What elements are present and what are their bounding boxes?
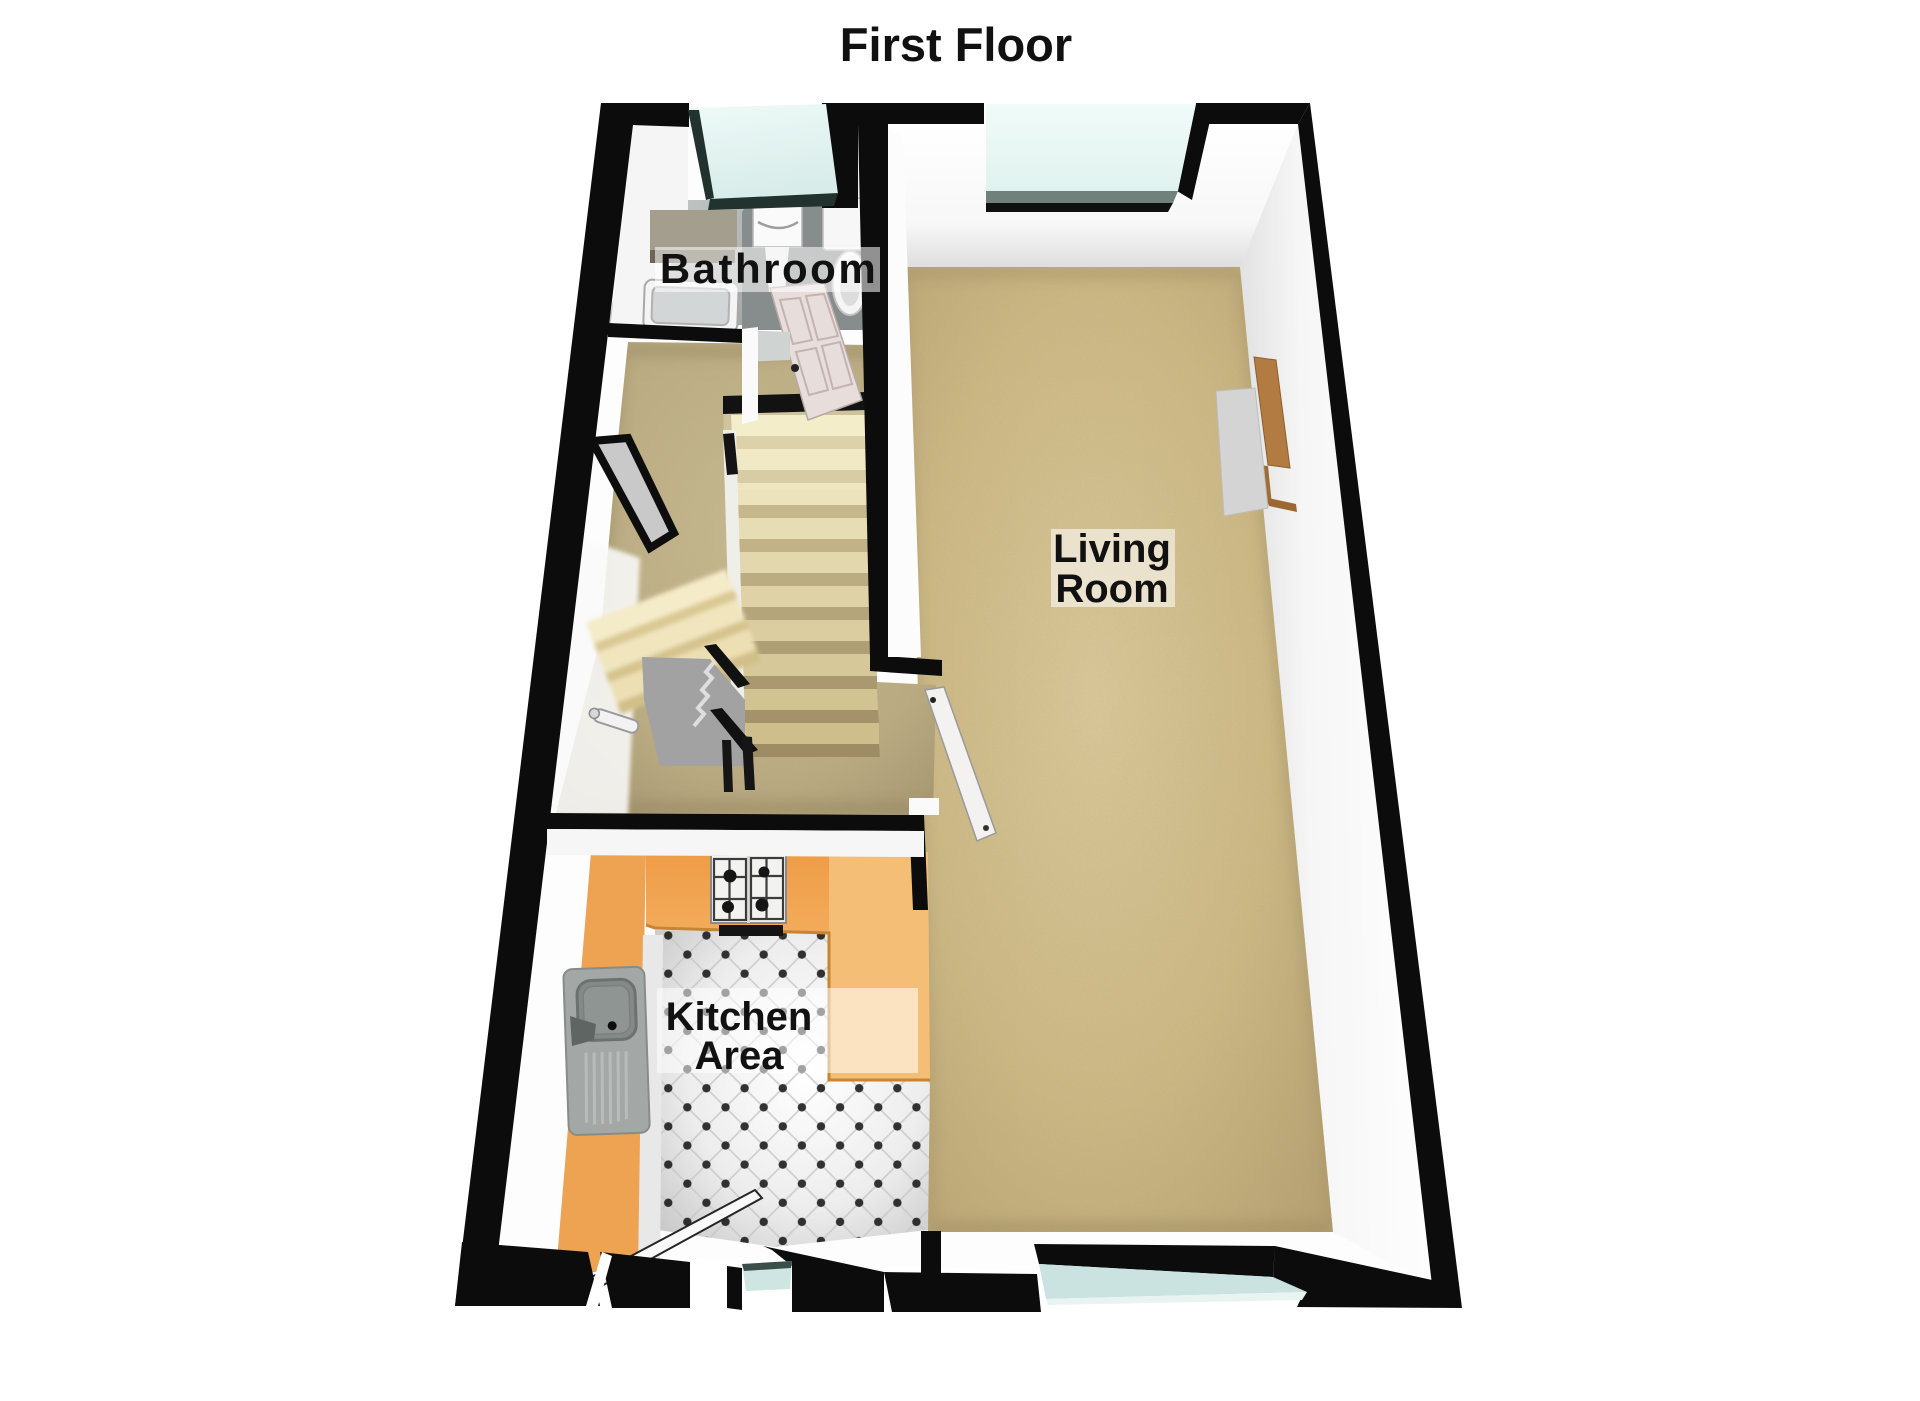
svg-text:Bathroom: Bathroom xyxy=(660,245,878,292)
svg-text:Living: Living xyxy=(1053,527,1171,571)
svg-text:Room: Room xyxy=(1055,567,1168,611)
svg-text:Area: Area xyxy=(695,1034,785,1078)
svg-text:Kitchen: Kitchen xyxy=(666,995,813,1039)
svg-text:First Floor: First Floor xyxy=(840,18,1072,71)
